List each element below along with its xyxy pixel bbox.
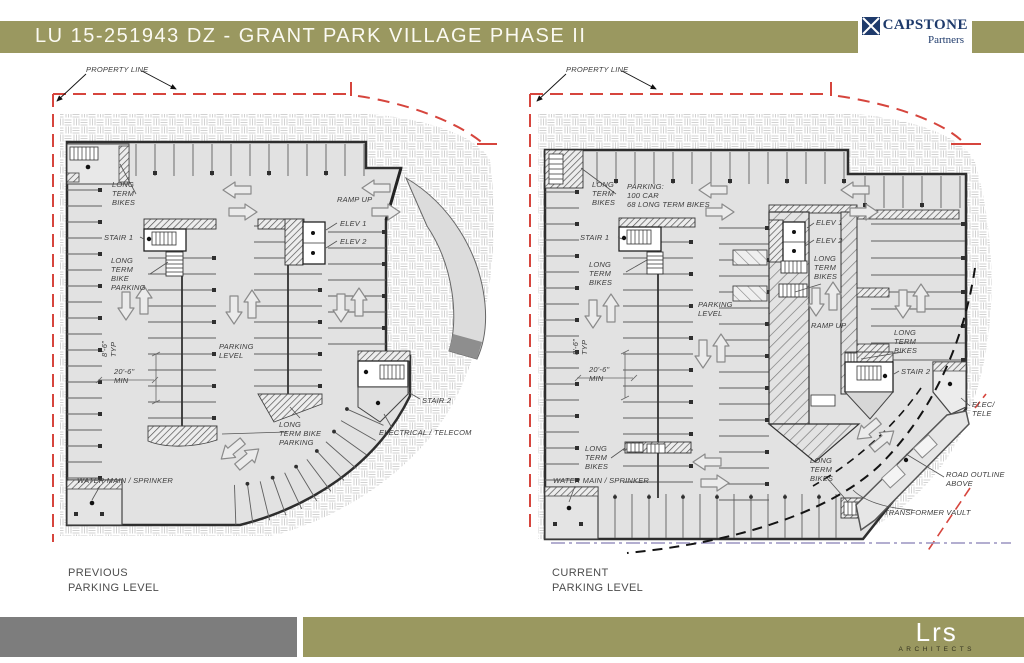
plan-label: STAIR 2	[901, 367, 930, 376]
capstone-name: CAPSTONE	[883, 17, 968, 34]
plan-label: PROPERTY LINE	[86, 65, 148, 74]
previous-plan-drawing	[40, 62, 500, 562]
plan-label: LONGTERMBIKES	[589, 260, 612, 287]
plan-label: LONGTERMBIKES	[814, 254, 837, 281]
page-title: LU 15-251943 DZ - GRANT PARK VILLAGE PHA…	[35, 25, 586, 48]
plan-label: 20'-6"MIN	[589, 365, 609, 383]
plan-label: STAIR 1	[104, 233, 133, 242]
capstone-diamond-icon	[862, 17, 880, 35]
current-parking-plan: PROPERTY LINELONGTERMBIKESPARKING:100 CA…	[523, 62, 1013, 562]
footer-gray-bar	[0, 617, 297, 657]
plan-label: PARKING:100 CAR68 LONG TERM BIKES	[627, 182, 710, 209]
plan-label: 8'-6"TYP	[571, 339, 589, 355]
current-plan-caption: CURRENT PARKING LEVEL	[552, 566, 643, 596]
lrs-sub: ARCHITECTS	[898, 646, 975, 653]
plan-label: ELEV 1	[816, 218, 843, 227]
plan-label: STAIR 1	[580, 233, 609, 242]
plan-label: 20'-6"MIN	[114, 367, 134, 385]
plan-label: PARKINGLEVEL	[219, 342, 254, 360]
plan-label: LONGTERMBIKES	[894, 328, 917, 355]
plan-label: ROAD OUTLINEABOVE	[946, 470, 1005, 488]
capstone-logo: CAPSTONE Partners	[858, 8, 972, 54]
plan-label: WATER MAIN / SPRINKER	[77, 476, 173, 485]
property-line-leaders	[537, 71, 656, 101]
previous-plan-caption: PREVIOUS PARKING LEVEL	[68, 566, 159, 596]
plan-label: LONGTERM BIKEPARKING	[279, 420, 321, 447]
plan-label: LONGTERMBIKEPARKING	[111, 256, 146, 292]
property-line-leaders	[57, 71, 176, 101]
plan-label: PROPERTY LINE	[566, 65, 628, 74]
plan-label: LONGTERMBIKES	[585, 444, 608, 471]
previous-parking-plan: PROPERTY LINELONGTERMBIKESSTAIR 1LONGTER…	[40, 62, 500, 562]
lrs-architects-logo: Lrs ARCHITECTS	[898, 619, 975, 653]
plan-label: STAIR 2	[422, 396, 451, 405]
plan-label: 8'-6"TYP	[100, 341, 118, 357]
plan-label: TRANSFORMER VAULT	[884, 508, 971, 517]
plan-label: LONGTERMBIKES	[592, 180, 615, 207]
slide: LU 15-251943 DZ - GRANT PARK VILLAGE PHA…	[0, 0, 1024, 663]
plan-label: RAMP UP	[811, 321, 846, 330]
capstone-sub: Partners	[862, 34, 968, 46]
plan-label: ELEV 2	[816, 236, 843, 245]
plan-label: PARKINGLEVEL	[698, 300, 733, 318]
plan-label: WATER MAIN / SPRINKER	[553, 476, 649, 485]
plan-label: LONGTERMBIKES	[112, 180, 135, 207]
plan-label: ELECTRICAL / TELECOM	[379, 428, 472, 437]
plan-label: LONGTERMBIKES	[810, 456, 833, 483]
plan-label: ELEV 2	[340, 237, 367, 246]
lrs-name: Lrs	[916, 619, 958, 645]
plan-label: RAMP UP	[337, 195, 372, 204]
plan-label: ELEV 1	[340, 219, 367, 228]
plan-label: ELEC/TELE	[972, 400, 995, 418]
current-plan-drawing	[523, 62, 1013, 562]
